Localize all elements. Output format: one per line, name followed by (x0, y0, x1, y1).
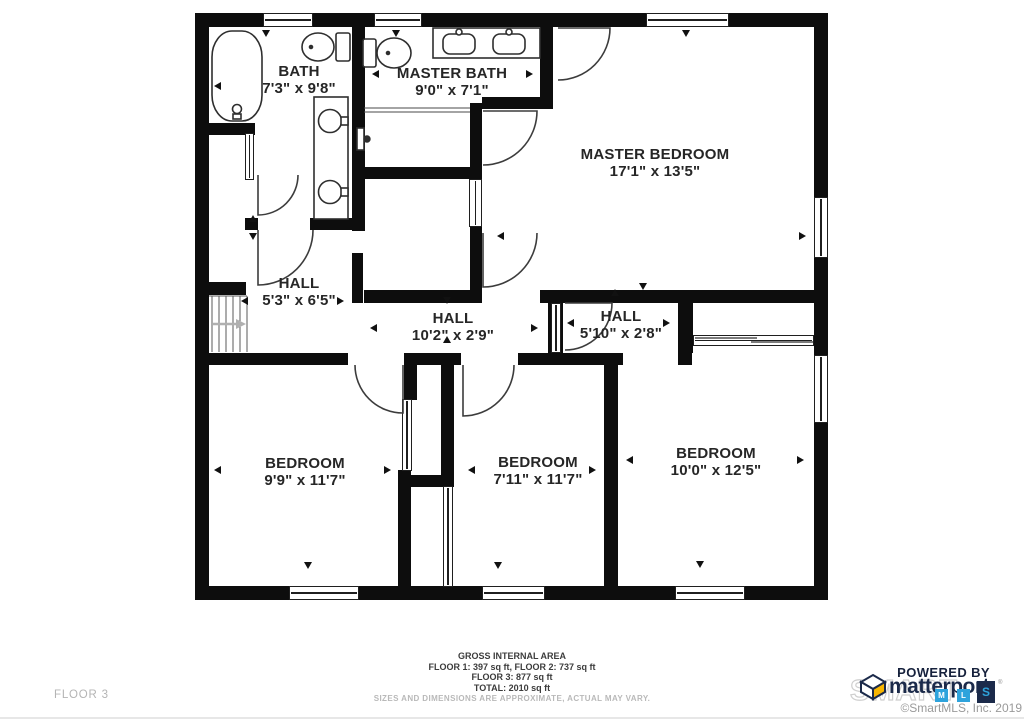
wall (195, 353, 348, 365)
copyright-label: ©SmartMLS, Inc. 2019 (900, 701, 1022, 715)
sliding-door (443, 486, 453, 587)
dimension-arrow (682, 30, 690, 37)
dimension-arrow (797, 456, 804, 464)
toilet-flush (309, 45, 313, 49)
shower-glass (364, 108, 470, 112)
dimension-arrow (249, 215, 257, 222)
floorplan-page: BATH 7'3" x 9'8" MASTER BATH 9'0" x 7'1"… (0, 0, 1024, 723)
dimension-arrow (639, 283, 647, 290)
dimension-arrow (249, 233, 257, 240)
sink-faucet (506, 29, 512, 35)
registered-mark: ® (998, 680, 1002, 686)
floor-number-label: FLOOR 3 (54, 689, 109, 701)
door-arc (258, 175, 298, 215)
door-arc (355, 365, 403, 413)
dimension-arrow (497, 232, 504, 240)
dimension-arrow (337, 297, 344, 305)
wall (470, 103, 482, 179)
door-arc (483, 111, 537, 165)
dimension-arrow (443, 297, 451, 304)
dimension-arrow (214, 466, 221, 474)
dimension-arrow (663, 319, 670, 327)
dimension-arrow (567, 319, 574, 327)
dimension-arrow (626, 456, 633, 464)
dimension-arrow (526, 70, 533, 78)
window-symbol (814, 355, 828, 423)
room-label-hall-1: HALL 5'3" x 6'5" (262, 275, 336, 309)
stair-direction-arrow (213, 319, 246, 329)
room-label-bedroom-2: BEDROOM 7'11" x 11'7" (493, 454, 582, 488)
room-name: HALL (262, 275, 336, 292)
dimension-arrow (241, 297, 248, 305)
room-dims: 10'2" x 2'9" (412, 327, 494, 344)
wall (364, 167, 470, 179)
sliding-door (693, 335, 814, 346)
dimension-arrow (384, 466, 391, 474)
door-arc (483, 233, 537, 287)
toilet-tank (336, 33, 350, 61)
dimension-arrow (214, 82, 221, 90)
room-name: BEDROOM (493, 454, 582, 471)
wall (604, 353, 618, 586)
room-label-bath: BATH 7'3" x 9'8" (262, 63, 336, 97)
room-name: HALL (580, 308, 662, 325)
room-dims: 9'0" x 7'1" (397, 82, 507, 99)
dimension-arrow (262, 30, 270, 37)
dimension-arrow (304, 562, 312, 569)
sink-basin (443, 34, 475, 54)
door-arc (558, 28, 610, 80)
room-name: MASTER BATH (397, 65, 507, 82)
sink-faucet (456, 29, 462, 35)
room-name: BEDROOM (671, 445, 762, 462)
wall (404, 365, 417, 400)
dimension-arrow (468, 466, 475, 474)
tub-faucet (233, 105, 242, 114)
wall (352, 27, 365, 231)
room-label-hall-3: HALL 5'10" x 2'8" (580, 308, 662, 342)
wall (678, 303, 693, 353)
wall (195, 13, 209, 600)
sink-basin (493, 34, 525, 54)
wall (404, 353, 461, 365)
toilet-flush (386, 51, 390, 55)
room-dims: 10'0" x 12'5" (671, 462, 762, 479)
wall (352, 253, 363, 303)
dimension-arrow (611, 289, 619, 296)
sink-faucet (341, 117, 348, 125)
toilet-bowl (302, 33, 334, 61)
dimension-arrow (696, 561, 704, 568)
room-dims: 7'3" x 9'8" (262, 80, 336, 97)
room-name: BATH (262, 63, 336, 80)
window-symbol (289, 586, 359, 600)
dimension-arrow (589, 466, 596, 474)
dimension-arrow (531, 324, 538, 332)
room-label-master-bath: MASTER BATH 9'0" x 7'1" (397, 65, 507, 99)
wall (195, 282, 246, 295)
vanity-counter (433, 28, 540, 58)
dimension-arrow (370, 324, 377, 332)
toilet-bowl (377, 38, 411, 68)
wall (563, 290, 686, 303)
room-dims: 5'3" x 6'5" (262, 292, 336, 309)
room-dims: 5'10" x 2'8" (580, 325, 662, 342)
wall (398, 470, 411, 586)
window-symbol (374, 13, 422, 27)
dimension-arrow (392, 30, 400, 37)
window-symbol (482, 586, 545, 600)
room-dims: 9'9" x 11'7" (264, 472, 345, 489)
sink-basin (319, 110, 342, 133)
sink-faucet (341, 188, 348, 196)
window-symbol (814, 197, 828, 258)
wall (814, 13, 828, 600)
dimension-arrow (799, 232, 806, 240)
wall (441, 365, 454, 487)
room-name: BEDROOM (264, 455, 345, 472)
room-dims: 7'11" x 11'7" (493, 471, 582, 488)
wall (310, 218, 364, 230)
wall (470, 227, 482, 290)
vanity-counter (314, 97, 348, 219)
wall (364, 290, 482, 303)
door-arc (463, 365, 514, 416)
page-divider-line (0, 717, 1024, 719)
room-name: MASTER BEDROOM (581, 146, 730, 163)
window-symbol (675, 586, 745, 600)
sliding-door (551, 303, 561, 353)
room-label-bedroom-3: BEDROOM 10'0" x 12'5" (671, 445, 762, 479)
branding-block: SMART POWERED BY matterport M L S ® ©Sma… (844, 662, 1020, 720)
window-symbol (263, 13, 313, 27)
sliding-door (469, 179, 482, 227)
sliding-door (245, 133, 254, 180)
bathtub (212, 31, 262, 121)
room-label-hall-2: HALL 10'2" x 2'9" (412, 310, 494, 344)
dimension-arrow (494, 562, 502, 569)
room-label-bedroom-1: BEDROOM 9'9" x 11'7" (264, 455, 345, 489)
mls-square-s: S (977, 681, 995, 703)
sliding-door (402, 399, 412, 471)
room-dims: 17'1" x 13'5" (581, 163, 730, 180)
room-label-master-bedroom: MASTER BEDROOM 17'1" x 13'5" (581, 146, 730, 180)
wall (686, 290, 828, 303)
sink-basin (319, 181, 342, 204)
tub-faucet (233, 114, 241, 119)
dimension-arrow (372, 70, 379, 78)
room-name: HALL (412, 310, 494, 327)
wall (678, 353, 692, 365)
footer-title: GROSS INTERNAL AREA (0, 651, 1024, 662)
matterport-cube-icon (859, 673, 887, 706)
window-symbol (646, 13, 729, 27)
